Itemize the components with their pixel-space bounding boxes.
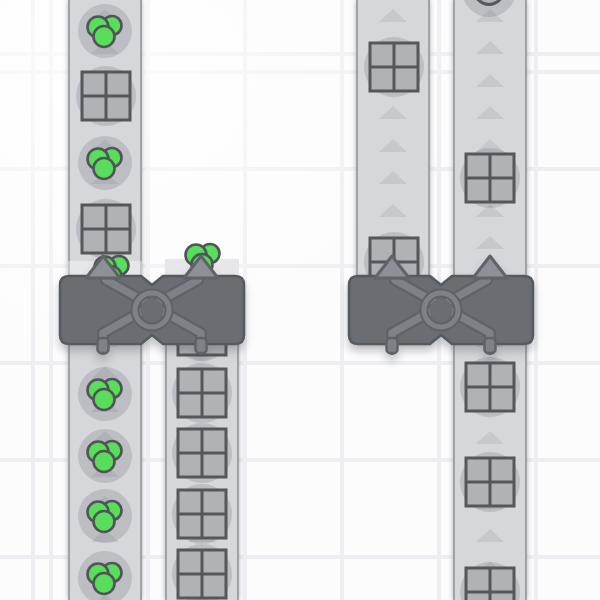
machines-layer (0, 0, 600, 600)
game-world-canvas (0, 0, 600, 600)
balancer-machine[interactable] (52, 246, 252, 362)
balancer-machine[interactable] (341, 246, 541, 362)
